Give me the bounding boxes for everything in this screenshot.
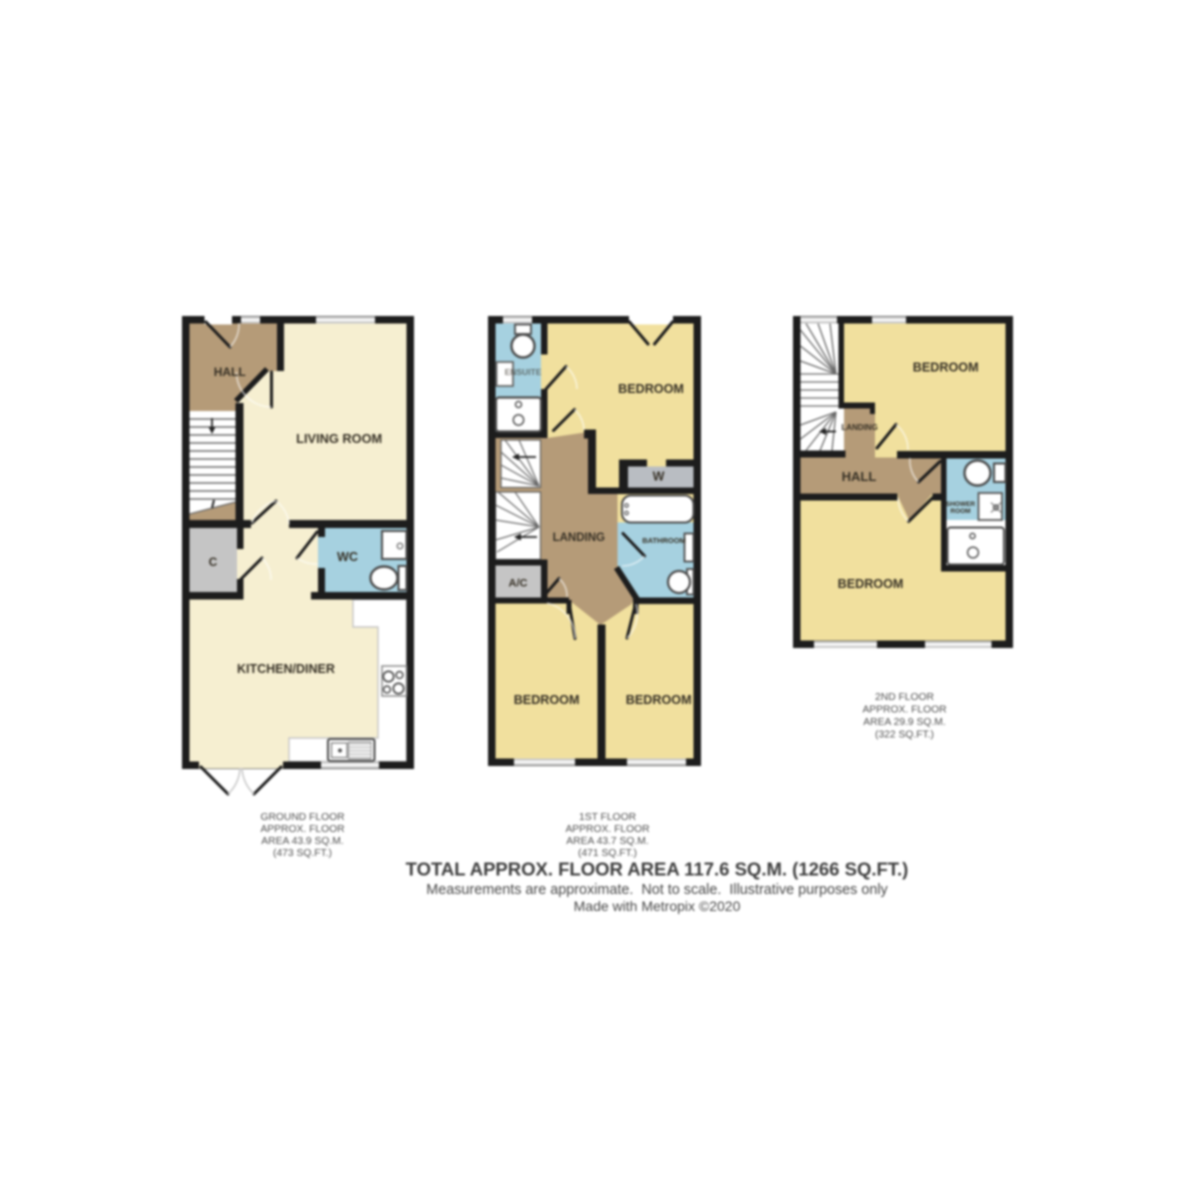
svg-text:GROUND FLOOR: GROUND FLOOR	[260, 812, 344, 823]
svg-text:C: C	[209, 555, 218, 569]
svg-text:1ST FLOOR: 1ST FLOOR	[579, 812, 636, 823]
svg-text:2ND FLOOR: 2ND FLOOR	[875, 692, 934, 703]
svg-text:APPROX. FLOOR: APPROX. FLOOR	[565, 824, 649, 835]
svg-text:AREA 43.9 SQ.M.: AREA 43.9 SQ.M.	[261, 836, 343, 847]
svg-text:LIVING ROOM: LIVING ROOM	[296, 431, 382, 446]
svg-text:TOTAL APPROX. FLOOR AREA 117.6: TOTAL APPROX. FLOOR AREA 117.6 SQ.M. (12…	[406, 859, 909, 880]
svg-text:BEDROOM: BEDROOM	[514, 693, 580, 707]
svg-text:AREA 43.7 SQ.M.: AREA 43.7 SQ.M.	[566, 836, 648, 847]
svg-text:BEDROOM: BEDROOM	[618, 382, 684, 396]
svg-text:Measurements are approximate.: Measurements are approximate. Not to sca…	[426, 882, 888, 898]
svg-text:(473 SQ.FT.): (473 SQ.FT.)	[273, 848, 332, 859]
svg-text:BATHROOM: BATHROOM	[642, 536, 686, 545]
svg-text:WC: WC	[337, 550, 358, 564]
svg-text:BEDROOM: BEDROOM	[626, 693, 692, 707]
svg-text:LANDING: LANDING	[553, 532, 605, 544]
svg-text:BEDROOM: BEDROOM	[913, 361, 979, 375]
svg-text:ROOM: ROOM	[950, 508, 970, 515]
svg-text:KITCHEN/DINER: KITCHEN/DINER	[237, 662, 335, 676]
svg-text:W: W	[653, 470, 665, 484]
svg-text:A/C: A/C	[509, 578, 528, 590]
svg-text:AREA 29.9 SQ.M.: AREA 29.9 SQ.M.	[863, 717, 945, 728]
svg-text:ENSUITE: ENSUITE	[505, 367, 542, 377]
svg-text:APPROX. FLOOR: APPROX. FLOOR	[260, 824, 344, 835]
svg-text:LANDING: LANDING	[841, 423, 877, 432]
svg-text:BEDROOM: BEDROOM	[838, 577, 904, 591]
svg-text:(471 SQ.FT.): (471 SQ.FT.)	[578, 848, 637, 859]
svg-text:(322 SQ.FT.): (322 SQ.FT.)	[875, 730, 934, 741]
svg-text:APPROX. FLOOR: APPROX. FLOOR	[862, 705, 946, 716]
svg-text:HALL: HALL	[842, 469, 877, 484]
svg-text:Made with Metropix ©2020: Made with Metropix ©2020	[574, 898, 741, 914]
svg-text:SHOWER: SHOWER	[946, 501, 976, 508]
svg-text:HALL: HALL	[214, 365, 246, 379]
